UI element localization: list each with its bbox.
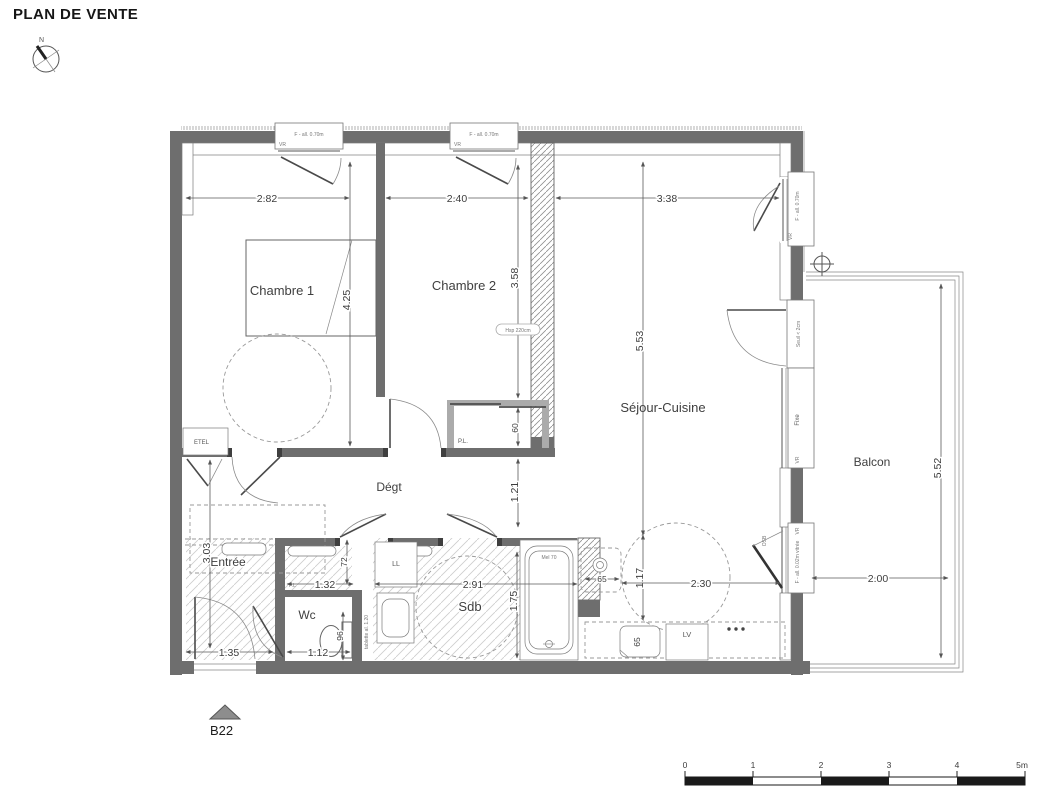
dim-sejour-width: 3.38 <box>657 193 678 205</box>
kitchen-window: VR F - all. 0.02m vitrée OSB <box>753 523 814 593</box>
room-label-chambre2: Chambre 2 <box>432 278 496 293</box>
scale-0: 0 <box>683 760 688 770</box>
lot-triangle-icon <box>210 705 240 719</box>
room-label-entree: Entrée <box>210 555 246 569</box>
left-wall <box>170 131 182 675</box>
page-title: PLAN DE VENTE <box>13 6 138 23</box>
bottom-wall <box>170 661 810 674</box>
right-insulation-2 <box>780 242 791 300</box>
wall-entree-wc <box>275 538 285 661</box>
north-compass: N <box>33 37 59 72</box>
dim-nook-depth: 72 <box>339 557 349 567</box>
dim-sdb-depth: 1.75 <box>508 591 520 612</box>
dim-kitchen-clear: 1.17 <box>634 568 646 589</box>
fixe-label: Fixe <box>795 414 801 426</box>
window-right-label: F - all. 0.70m <box>795 191 801 220</box>
radiator-nook <box>288 546 336 556</box>
dim-ch1-width: 2.82 <box>257 193 278 205</box>
scale-4: 4 <box>955 760 960 770</box>
lot-marker: B22 <box>210 705 240 738</box>
compass-north-label: N <box>39 37 44 44</box>
window-ch2: F - all. 0.70m VR <box>450 123 518 184</box>
right-wall-seg2 <box>791 242 803 300</box>
door-ch1-leaf <box>241 457 280 495</box>
kitchen-window-labelbox <box>788 523 814 593</box>
door-jamb-blocks <box>227 448 502 546</box>
wall-nook-wc <box>285 590 352 597</box>
etel-label: ETEL <box>194 440 210 446</box>
window-sejour-right: F - all. 0.70m VR <box>753 172 814 246</box>
dim-appliance: 65 <box>597 574 607 584</box>
door-ch1-swing <box>232 457 278 503</box>
bathtub: Mel 70 <box>520 540 578 660</box>
lv-label: LV <box>683 630 692 639</box>
ceiling-height-tag: Hsp 220cm <box>496 324 540 335</box>
fixed-window: Fixe VR <box>782 368 814 468</box>
wall-ch1-bottom-right <box>280 448 388 457</box>
dim-degt: 1.21 <box>509 482 521 503</box>
balcony-door: Seuil < 2cm <box>727 300 814 368</box>
dim-balcon-width: 2.00 <box>868 573 889 585</box>
dim-sink: 65 <box>632 637 642 647</box>
entrance-opening <box>194 661 256 674</box>
dim-sejour-depth: 5.53 <box>634 331 646 352</box>
dim-closet-depth: 60 <box>510 423 520 433</box>
wall-ch2-bottom <box>441 448 555 457</box>
dim-wc-width: 1.12 <box>308 647 329 659</box>
survey-point-icon <box>810 252 834 276</box>
bathtub-label: Mel 70 <box>541 555 556 561</box>
fixe-vr: VR <box>795 456 801 463</box>
kitchen-counter <box>581 548 785 660</box>
dim-wc-depth: 96 <box>335 631 345 641</box>
door-sdb-leaf <box>447 514 497 537</box>
dim-nook-width: 1.32 <box>315 579 336 591</box>
room-label-wc: Wc <box>298 608 315 622</box>
window-ch2-label: F - all. 0.70m <box>469 132 498 138</box>
room-label-sejour: Séjour-Cuisine <box>620 400 705 415</box>
window-ch1-vr: VR <box>279 142 286 148</box>
compass-needle-icon <box>37 46 46 59</box>
room-label-degt: Dégt <box>376 480 402 494</box>
room-label-sdb: Sdb <box>458 599 481 614</box>
dim-balcon-depth: 5.52 <box>932 458 944 479</box>
scale-1: 1 <box>751 760 756 770</box>
window-ch1-label: F - all. 0.70m <box>294 132 323 138</box>
dim-ch2-width: 2.40 <box>447 193 468 205</box>
ll-label: LL <box>392 561 400 568</box>
dim-sdb-width: 2.91 <box>463 579 484 591</box>
osb-label: OSB <box>762 535 768 546</box>
window-ch2-casement <box>456 157 508 184</box>
scale-bar: 0 1 2 3 4 5m <box>683 760 1028 785</box>
left-insulation <box>182 143 193 215</box>
scale-2: 2 <box>819 760 824 770</box>
fixed-window-labelbox <box>788 368 814 468</box>
scale-3: 3 <box>887 760 892 770</box>
tablette-note: tablette al. 1.20 <box>364 615 370 649</box>
dim-ch2-depth: 3.58 <box>509 268 521 289</box>
window-ch1-casement <box>281 157 333 184</box>
dim-entree-width: 1.35 <box>219 647 240 659</box>
window-ch1: F - all. 0.70m VR <box>275 123 343 184</box>
hsp-label: Hsp 220cm <box>505 328 530 334</box>
kitchen-window-vr: VR <box>795 527 801 534</box>
closet-pl-label: P.L. <box>458 439 468 445</box>
dim-kitchen-width: 2.30 <box>691 578 712 590</box>
room-label-balcon: Balcon <box>854 455 891 469</box>
lot-id: B22 <box>210 723 233 738</box>
right-insulation-3 <box>780 468 791 527</box>
right-insulation-4 <box>780 593 791 660</box>
floor-plan-sheet: PLAN DE VENTE N <box>0 0 1057 800</box>
radiator-entree <box>222 543 266 555</box>
window-ch2-vr: VR <box>454 142 461 148</box>
scale-5: 5m <box>1016 760 1028 770</box>
room-label-chambre1: Chambre 1 <box>250 283 314 298</box>
hob <box>727 627 744 630</box>
washbasin <box>377 593 414 643</box>
right-wall-seg4 <box>791 593 803 675</box>
seuil-label: Seuil < 2cm <box>796 321 802 347</box>
etel-door-leaf <box>187 459 208 486</box>
dim-ch1-depth: 4.25 <box>341 290 353 311</box>
kitchen-window-leaf <box>753 545 782 588</box>
closet-front <box>447 400 549 406</box>
turning-circle-ch1 <box>223 334 331 442</box>
kitchen-window-label: F - all. 0.02m vitrée <box>795 540 801 583</box>
right-wall-seg3 <box>791 468 803 527</box>
balcony-door-swing <box>727 310 786 366</box>
right-wall-seg1 <box>791 131 803 177</box>
wall-ch1-ch2 <box>376 143 385 397</box>
duct-sdb-kitchen-block <box>578 600 600 617</box>
wall-wc-sdb <box>352 590 362 661</box>
door-nook-leaf <box>340 514 386 537</box>
door-ch2-swing <box>390 399 441 448</box>
closet-left-post <box>447 400 454 448</box>
window-right-vr: VR <box>788 233 794 240</box>
